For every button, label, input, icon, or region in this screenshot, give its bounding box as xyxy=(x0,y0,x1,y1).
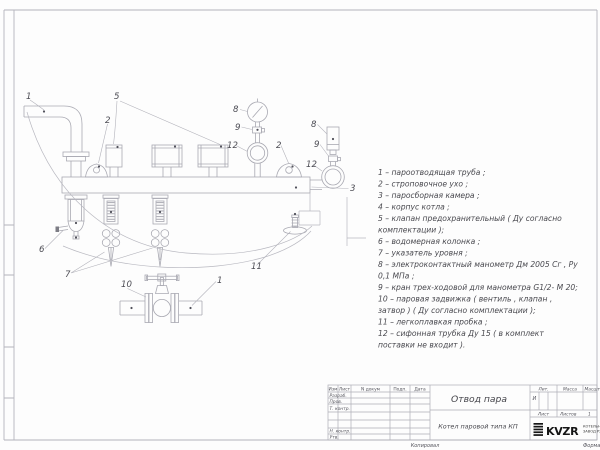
document-title: Отвод пара xyxy=(451,394,507,405)
list-label: Лист xyxy=(537,412,550,418)
water-gauge-column xyxy=(56,195,88,239)
parts-list-line: 10 – паровая задвижка ( вентиль , клапан… xyxy=(378,295,552,304)
parts-list-line: 0,1 МПа ; xyxy=(378,272,415,281)
lit-label: Лит. xyxy=(537,387,548,393)
parts-list-line: 6 – водомерная колонка ; xyxy=(378,237,481,246)
reference-dots xyxy=(43,110,334,309)
parts-list-line: 2 – строповочное ухо ; xyxy=(378,180,468,189)
leader-lines xyxy=(30,100,349,306)
row-utv: Утв. xyxy=(330,435,339,441)
product-name: Котел паровой типа КП xyxy=(438,423,518,431)
callout-11: 11 xyxy=(251,262,262,272)
callout-9: 9 xyxy=(235,123,240,133)
col-podp: Подп. xyxy=(393,387,406,393)
callout-6: 6 xyxy=(39,245,45,255)
massa-label: Масса xyxy=(563,387,577,393)
parts-list-line: 3 – паросборная камера ; xyxy=(378,191,480,200)
parts-list-line: затвор ) ( Ду согласно комплектации ); xyxy=(378,306,536,315)
steam-drum xyxy=(62,177,310,193)
parts-list-line: 1 – пароотводящая труба ; xyxy=(378,168,486,177)
lit-value: И xyxy=(533,396,537,402)
masshtab-label: Масшт xyxy=(585,387,600,393)
parts-list-line: 8 – электроконтактный манометр Дм 2005 С… xyxy=(378,260,578,269)
technical-drawing-svg: 15289122891236710111 1 – пароотводящая т… xyxy=(0,0,600,450)
level-indicator-1 xyxy=(102,195,119,267)
callout-8: 8 xyxy=(311,120,317,130)
fusible-plug xyxy=(284,215,307,234)
company-name-line1: КОТЕЛЬНЫ xyxy=(583,425,600,429)
col-list: Лист xyxy=(339,387,351,393)
parts-list-line: 4 – корпус котла ; xyxy=(378,203,450,212)
parts-list-line: 9 – кран трех-ходовой для манометра G1/2… xyxy=(378,283,578,292)
pressure-gauge-assembly xyxy=(247,99,268,178)
parts-list-line: 11 – легкоплавкая пробка ; xyxy=(378,318,488,327)
callout-1: 1 xyxy=(26,92,31,102)
copied-label: Копировал xyxy=(411,443,440,449)
parts-list-line: поставки не входит ). xyxy=(378,341,465,350)
electric-contact-gauge-assembly xyxy=(310,127,344,190)
callout-labels: 15289122891236710111 xyxy=(26,92,355,290)
callout-7: 7 xyxy=(65,270,71,280)
company-logo: KVZR КОТЕЛЬНЫ ЗАВОД РЗ xyxy=(534,423,600,438)
callout-2: 2 xyxy=(105,116,110,126)
safety-valves xyxy=(106,145,228,177)
drawing-sheet: 15289122891236710111 1 – пароотводящая т… xyxy=(0,0,600,450)
listov-label: Листов xyxy=(559,412,577,418)
row-t-kontr: Т. контр. xyxy=(330,406,350,412)
steam-outlet-pipe xyxy=(24,106,89,177)
row-n-kontr: Н. контр. xyxy=(330,429,351,435)
parts-list-line: комплектации ); xyxy=(378,226,445,235)
steam-valve-detail xyxy=(120,274,202,323)
parts-list-line: 5 – клапан предохранительный ( Ду соглас… xyxy=(378,214,562,223)
title-block: Изм Лист N докум Подп. Дата Разраб. Пров… xyxy=(328,385,600,441)
row-prov: Пров. xyxy=(330,399,343,405)
col-n-dokum: N докум xyxy=(361,387,380,393)
callout-12: 12 xyxy=(306,160,317,170)
footer-labels: Копировал Формат А4 xyxy=(411,443,600,449)
parts-list: 1 – пароотводящая труба ; 2 – строповочн… xyxy=(378,168,578,350)
callout-12: 12 xyxy=(227,141,238,151)
callout-10: 10 xyxy=(121,280,132,290)
format-label: Формат А4 xyxy=(583,443,600,449)
parts-list-line: 12 – сифонная трубка Ду 15 ( в комплект xyxy=(378,329,544,338)
callout-5: 5 xyxy=(114,92,119,102)
callout-9: 9 xyxy=(314,140,319,150)
company-name-line2: ЗАВОД РЗ xyxy=(583,430,600,434)
col-data: Дата xyxy=(414,387,426,393)
parts-list-line: 7 – указатель уровня ; xyxy=(378,249,468,258)
callout-8: 8 xyxy=(233,105,239,115)
row-razrab: Разраб. xyxy=(330,393,347,399)
col-izm: Изм xyxy=(329,387,338,393)
level-indicator-2 xyxy=(151,195,168,267)
level-indicators xyxy=(102,195,168,267)
logo-text: KVZR xyxy=(546,425,579,438)
callout-3: 3 xyxy=(350,184,355,194)
listov-value: 1 xyxy=(588,412,591,418)
callout-1: 1 xyxy=(217,276,222,286)
boiler-diagram: 15289122891236710111 xyxy=(24,92,366,323)
callout-2: 2 xyxy=(276,141,281,151)
